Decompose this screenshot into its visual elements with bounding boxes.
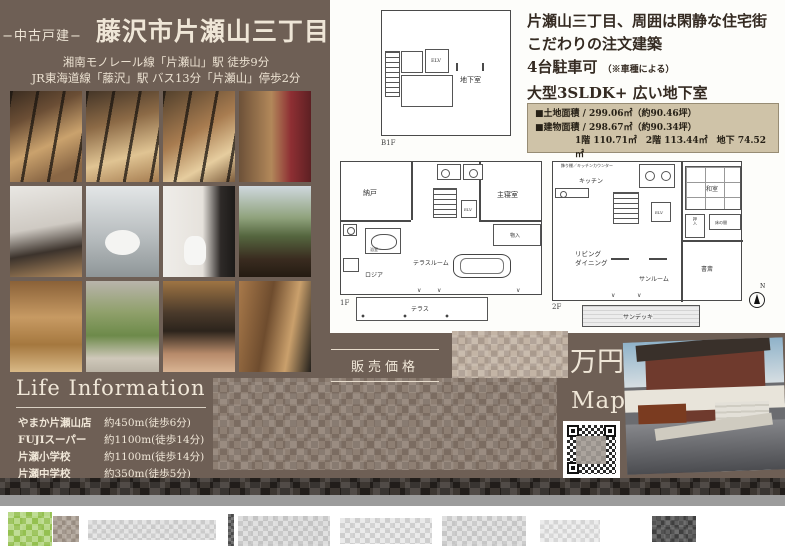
2f-tokonoma: 床の間 bbox=[709, 214, 741, 230]
2f-counter-note: 飾り棚／キッチンカウンター bbox=[561, 163, 613, 169]
2f-sundeck: サンデッキ bbox=[582, 305, 700, 327]
map-label: Map bbox=[571, 388, 626, 414]
qr-blurred-center bbox=[576, 436, 606, 464]
1f-loggia-label: ロジア bbox=[365, 270, 383, 279]
footer-blurred-text bbox=[238, 516, 330, 546]
1f-bedroom-label: 主寝室 bbox=[497, 190, 518, 200]
b1f-elevator: ELV bbox=[425, 49, 449, 73]
b1f-elv-label: ELV bbox=[431, 58, 441, 64]
footer-logo-blurred bbox=[8, 512, 52, 546]
2f-sundeck-label: サンデッキ bbox=[623, 312, 653, 321]
floorplan-2f: 飾り棚／キッチンカウンター キッチン ELV 和室 押入 床の間 bbox=[552, 161, 766, 331]
2f-washitsu: 和室 bbox=[685, 166, 741, 210]
photo-living-dining bbox=[86, 91, 158, 182]
2f-dining-label: ダイニング bbox=[575, 257, 608, 267]
floor-areas: 1階 110.71㎡ 2階 113.44㎡ 地下 74.52㎡ bbox=[535, 135, 771, 162]
2f-study-label: 書斎 bbox=[701, 264, 713, 273]
1f-storage: 物入 bbox=[493, 224, 541, 246]
feature-line-3: 4台駐車可 （※車種による） bbox=[527, 56, 785, 82]
place-name: やまか片瀬山店 bbox=[18, 415, 104, 430]
footer-blurred-text bbox=[442, 516, 526, 546]
2f-oshiire: 押入 bbox=[685, 214, 705, 238]
place-name: 片瀬小学校 bbox=[18, 449, 104, 464]
1f-toilet bbox=[343, 224, 357, 236]
footer-company-bar bbox=[0, 506, 785, 553]
1f-outline: 納戸 主寝室 ELV 浴室 物入 ロジア テラス bbox=[340, 161, 542, 295]
photo-bathroom-tub bbox=[86, 186, 158, 277]
photo-exterior-house bbox=[623, 337, 785, 475]
photo-window-garden bbox=[239, 186, 311, 277]
place-distance: 約1100m(徒歩14分) bbox=[104, 449, 204, 464]
footer-gray-bar bbox=[0, 495, 785, 506]
footer-blurred-text bbox=[340, 518, 432, 544]
2f-kitchen-label: キッチン bbox=[579, 176, 603, 185]
compass-icon bbox=[749, 292, 765, 308]
1f-bath-label: 浴室 bbox=[370, 247, 378, 253]
photo-red-kitchen bbox=[239, 91, 311, 182]
b1f-stairs bbox=[385, 51, 400, 97]
qr-code bbox=[563, 421, 620, 478]
2f-tokonoma-label: 床の間 bbox=[715, 220, 727, 226]
1f-stairs bbox=[433, 188, 457, 218]
list-item: FUJIスーパー 約1100m(徒歩14分) bbox=[18, 431, 204, 448]
2f-sunroom-label: サンルーム bbox=[639, 274, 669, 283]
b1f-column bbox=[456, 63, 458, 71]
photo-garden-lawn bbox=[86, 281, 158, 372]
feature-line-1: 片瀬山三丁目、周囲は閑静な住宅街 bbox=[527, 10, 785, 33]
building-area: ■建物面積 / 298.67㎡（約90.34坪） bbox=[535, 122, 771, 136]
b1f-column bbox=[482, 63, 484, 71]
photo-entrance-approach bbox=[163, 281, 235, 372]
photo-wood-room bbox=[10, 281, 82, 372]
footer-blurred-band bbox=[0, 478, 785, 495]
footer-blurred-text bbox=[88, 520, 216, 540]
access-line-1: 湘南モノレール線「片瀬山」駅 徒歩9分 bbox=[0, 54, 332, 70]
b1f-floor-tag: B1F bbox=[381, 139, 395, 147]
access-line-2: JR東海道線「藤沢」駅 バス13分「片瀬山」停歩2分 bbox=[0, 70, 332, 86]
feature-line-2: こだわりの注文建築 bbox=[527, 33, 785, 56]
b1f-room bbox=[401, 51, 423, 73]
1f-terrace-room-label: テラスルーム bbox=[413, 258, 449, 267]
1f-terrace-deck: テラス bbox=[356, 297, 488, 321]
area-info-box: ■土地面積 / 299.06㎡（約90.46坪） ■建物面積 / 298.67㎡… bbox=[527, 103, 779, 153]
1f-storage-label: 物入 bbox=[510, 232, 520, 239]
1f-bathroom: 浴室 bbox=[365, 228, 401, 254]
price-unit: 万円 bbox=[570, 340, 624, 379]
blurred-details-block bbox=[213, 378, 557, 470]
1f-elevator: ELV bbox=[461, 200, 477, 218]
place-distance: 約1100m(徒歩14分) bbox=[104, 432, 204, 447]
list-item: 片瀬小学校 約1100m(徒歩14分) bbox=[18, 448, 204, 465]
2f-oshiire-label: 押入 bbox=[692, 217, 698, 225]
1f-floor-tag: 1F bbox=[340, 299, 349, 307]
2f-elv-label: ELV bbox=[655, 210, 663, 215]
footer-blurred-text bbox=[540, 520, 600, 542]
photo-grid bbox=[10, 91, 311, 372]
1f-elv-label: ELV bbox=[464, 207, 472, 212]
list-item: やまか片瀬山店 約450m(徒歩6分) bbox=[18, 414, 204, 431]
b1f-hall bbox=[401, 75, 453, 107]
flyer-page: −中古戸建− 藤沢市片瀬山三丁目 湘南モノレール線「片瀬山」駅 徒歩9分 JR東… bbox=[0, 0, 785, 553]
1f-entry bbox=[343, 258, 359, 272]
2f-stairs bbox=[613, 192, 639, 224]
place-distance: 約450m(徒歩6分) bbox=[104, 415, 191, 430]
photo-washroom bbox=[10, 186, 82, 277]
1f-car-garage bbox=[453, 254, 511, 278]
header: −中古戸建− 藤沢市片瀬山三丁目 bbox=[0, 12, 332, 48]
footer-blurred-block bbox=[53, 516, 79, 542]
life-information-list: やまか片瀬山店 約450m(徒歩6分) FUJIスーパー 約1100m(徒歩14… bbox=[18, 414, 204, 482]
1f-washroom bbox=[463, 164, 483, 180]
2f-elevator: ELV bbox=[651, 202, 671, 222]
feature-parking: 4台駐車可 bbox=[527, 58, 597, 76]
b1f-basement-label: 地下室 bbox=[460, 75, 481, 85]
2f-kitchen-counter bbox=[555, 188, 589, 198]
price-label: 販売価格 bbox=[331, 349, 439, 382]
1f-terrace-label: テラス bbox=[411, 304, 429, 313]
1f-wc bbox=[437, 164, 461, 180]
blurred-price-value bbox=[452, 331, 568, 378]
footer-blurred-dark-block bbox=[652, 516, 696, 542]
features-text: 片瀬山三丁目、周囲は閑静な住宅街 こだわりの注文建築 4台駐車可 （※車種による… bbox=[527, 10, 785, 105]
feature-parking-note: （※車種による） bbox=[603, 65, 675, 75]
photo-hallway bbox=[239, 281, 311, 372]
access-info: 湘南モノレール線「片瀬山」駅 徒歩9分 JR東海道線「藤沢」駅 バス13分「片瀬… bbox=[0, 54, 332, 86]
2f-floor-tag: 2F bbox=[552, 303, 561, 311]
2f-washitsu-label: 和室 bbox=[706, 184, 718, 193]
compass-north-label: N bbox=[760, 283, 765, 290]
life-information-divider bbox=[16, 407, 206, 408]
floorplan-b1f: ELV 地下室 bbox=[381, 10, 511, 136]
photo-toilet bbox=[163, 186, 235, 277]
land-area: ■土地面積 / 299.06㎡（約90.46坪） bbox=[535, 108, 771, 122]
property-category: −中古戸建− bbox=[2, 25, 82, 44]
1f-nando-label: 納戸 bbox=[363, 188, 377, 198]
photo-kitchen-area bbox=[163, 91, 235, 182]
2f-outline: 飾り棚／キッチンカウンター キッチン ELV 和室 押入 床の間 bbox=[552, 161, 742, 301]
footer-blurred-divider bbox=[228, 514, 234, 546]
feature-line-4: 大型3SLDK+ 広い地下室 bbox=[527, 82, 785, 105]
photo-living-beams bbox=[10, 91, 82, 182]
place-name: FUJIスーパー bbox=[18, 432, 104, 447]
page-title: 藤沢市片瀬山三丁目 bbox=[96, 12, 330, 48]
life-information-title: Life Information bbox=[16, 376, 206, 400]
2f-wc bbox=[639, 164, 675, 188]
